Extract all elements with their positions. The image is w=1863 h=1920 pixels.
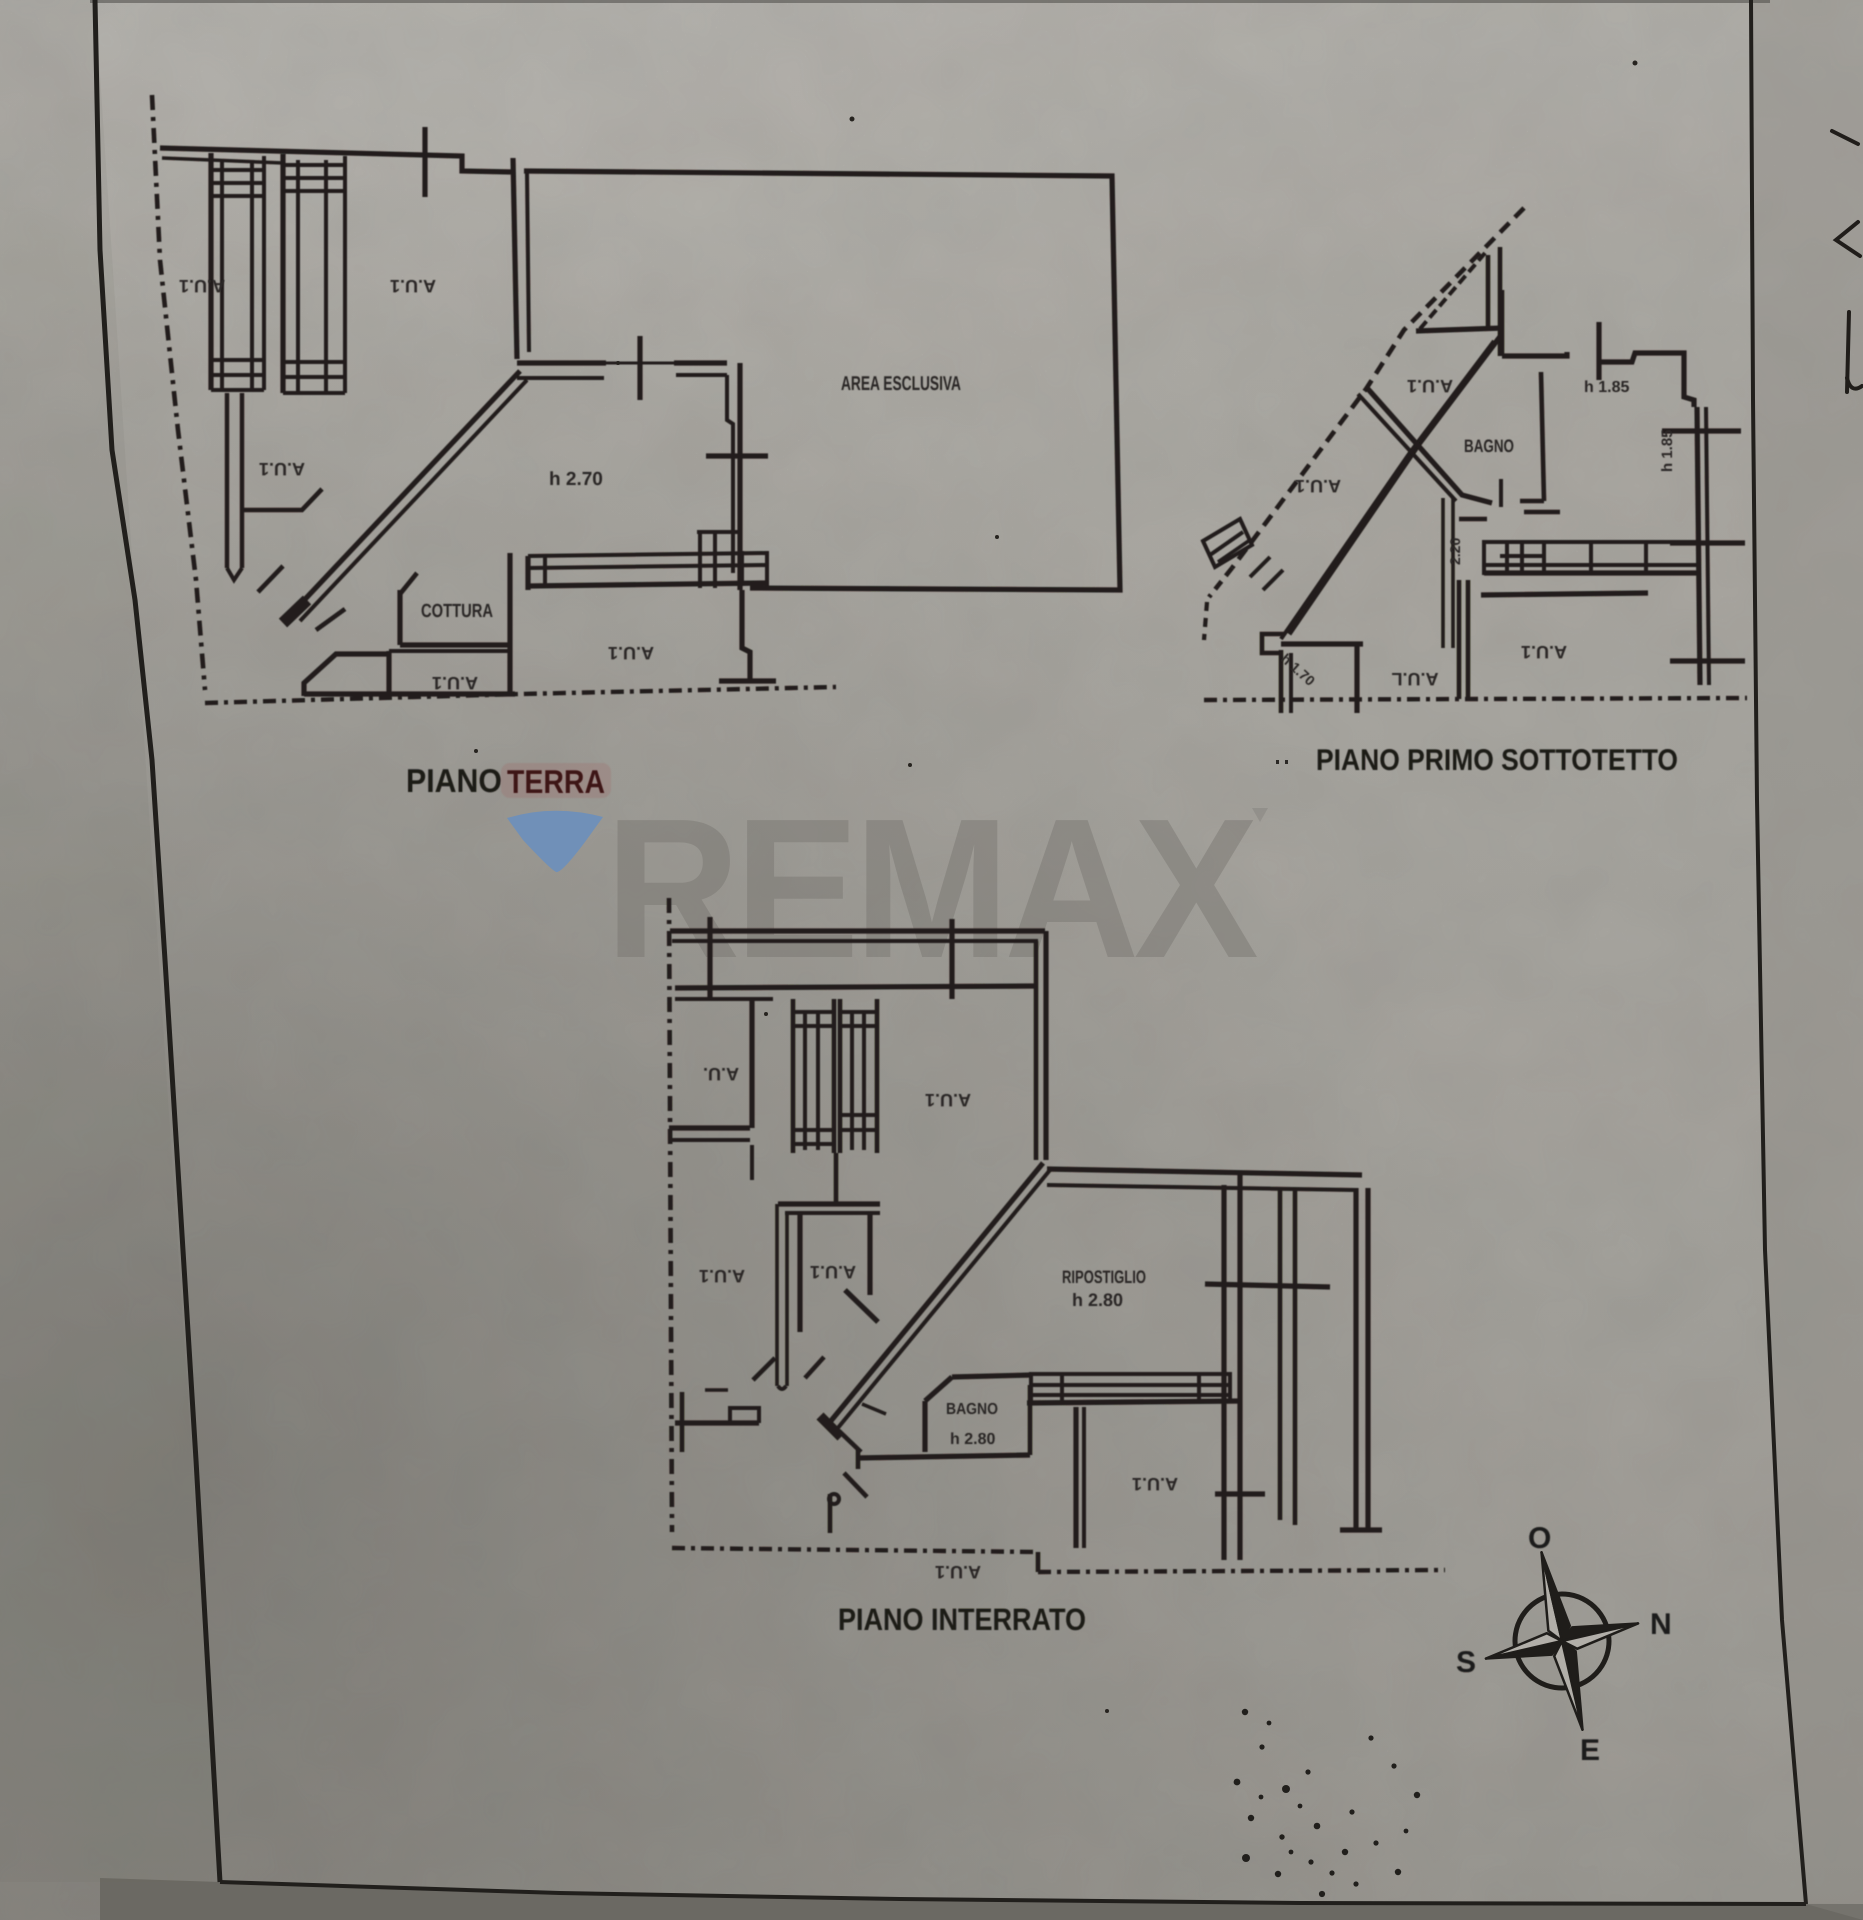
svg-text:A.U.1: A.U.1 <box>1407 376 1453 396</box>
svg-text:A.U.1: A.U.1 <box>935 1562 981 1582</box>
svg-text:A.U.1: A.U.1 <box>699 1266 745 1286</box>
svg-text:h 2.80: h 2.80 <box>950 1431 995 1448</box>
svg-text:PIANO: PIANO <box>406 762 502 799</box>
svg-text:BAGNO: BAGNO <box>1464 436 1514 456</box>
svg-text:A.U.1: A.U.1 <box>1132 1474 1178 1494</box>
svg-text:COTTURA: COTTURA <box>421 601 493 622</box>
svg-text:h 2.80: h 2.80 <box>1072 1290 1123 1310</box>
svg-text:O: O <box>1528 1522 1551 1555</box>
svg-text:RIPOSTIGLIO: RIPOSTIGLIO <box>1062 1267 1146 1287</box>
svg-text:A.U.1: A.U.1 <box>608 643 654 663</box>
svg-text:PIANO PRIMO SOTTOTETTO: PIANO PRIMO SOTTOTETTO <box>1316 744 1678 777</box>
svg-text:S: S <box>1456 1646 1476 1679</box>
svg-text:A.U.1: A.U.1 <box>1295 476 1341 496</box>
svg-text:A.U.1: A.U.1 <box>810 1262 856 1282</box>
svg-text:REMAX: REMAX <box>605 778 1257 1000</box>
svg-text:TERRA: TERRA <box>507 763 605 800</box>
svg-text:N: N <box>1650 1608 1672 1641</box>
svg-text:h 1.85: h 1.85 <box>1584 379 1629 396</box>
svg-text:A.U.1: A.U.1 <box>925 1090 971 1110</box>
svg-text:2.20: 2.20 <box>1447 538 1463 565</box>
svg-text:E: E <box>1580 1734 1600 1767</box>
svg-text:BAGNO: BAGNO <box>946 1401 998 1418</box>
svg-text:A.U.: A.U. <box>703 1064 739 1084</box>
svg-text:A.U.1: A.U.1 <box>1521 642 1567 662</box>
svg-text:A.U.1: A.U.1 <box>179 276 225 296</box>
svg-text:AREA ESCLUSIVA: AREA ESCLUSIVA <box>841 373 961 395</box>
svg-text:A.U.1: A.U.1 <box>259 459 305 479</box>
svg-text:h 2.70: h 2.70 <box>549 469 603 490</box>
svg-text:A.U.1: A.U.1 <box>432 673 478 693</box>
svg-text:A.U.L: A.U.L <box>1392 669 1439 689</box>
svg-text:PIANO INTERRATO: PIANO INTERRATO <box>838 1602 1086 1637</box>
svg-text:h 1.85: h 1.85 <box>1659 429 1676 472</box>
svg-text:A.U.1: A.U.1 <box>390 276 436 296</box>
